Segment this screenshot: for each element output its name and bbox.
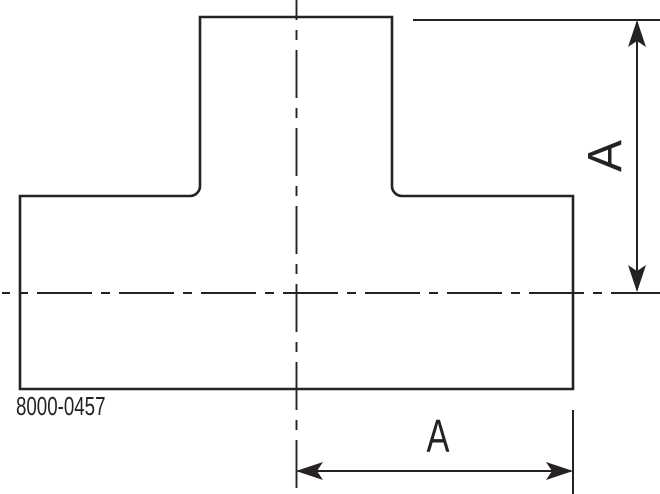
technical-drawing-canvas: 8000-0457 A A [0, 0, 660, 494]
part-number-label: 8000-0457 [16, 391, 105, 421]
dimension-label-right: A [579, 140, 632, 172]
label-group: 8000-0457 A A [16, 140, 632, 462]
dimension-label-bottom: A [426, 410, 450, 462]
arrowhead-group [296, 20, 646, 480]
dimension-line-group [298, 20, 660, 494]
tee-fitting-drawing: 8000-0457 A A [0, 0, 660, 494]
